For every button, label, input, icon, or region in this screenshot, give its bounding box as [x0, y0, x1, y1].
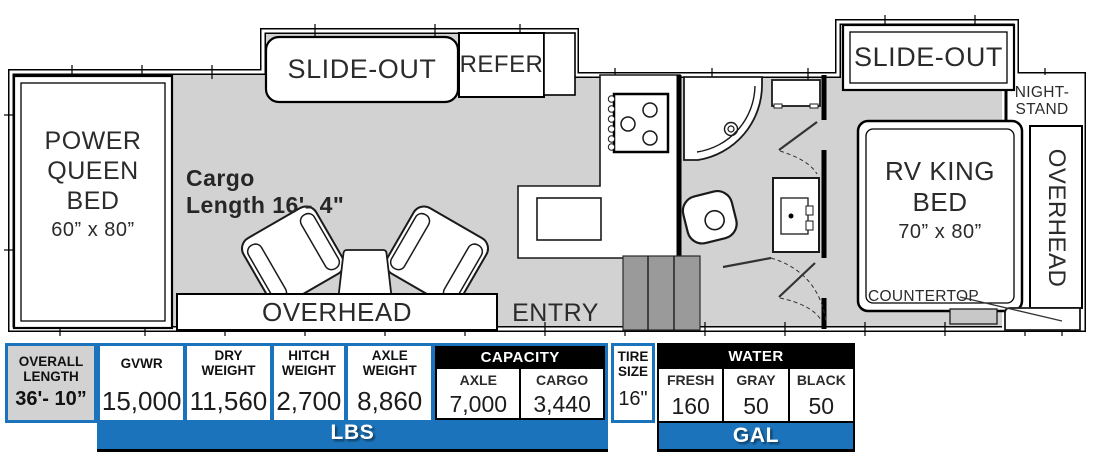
queen-bed-label: POWER QUEEN BED 60” x 80” [20, 126, 166, 242]
refer-label: REFER [459, 33, 544, 97]
overall-length-label: OVERALL LENGTH [19, 355, 84, 384]
capacity-axle-cell: AXLE 7,000 [437, 369, 519, 418]
tire-size-cell: TIRE SIZE 16" [611, 343, 655, 423]
rv-floorplan-graphic: POWER QUEEN BED 60” x 80” Cargo Length 1… [0, 0, 1093, 457]
kitchen-sink [537, 198, 601, 240]
king-bed-size: 70” x 80” [862, 220, 1018, 244]
hitch-weight-cell: HITCH WEIGHT 2,700 [274, 346, 344, 420]
lbs-unit-bar: LBS [100, 420, 605, 446]
gvwr-value: 15,000 [100, 382, 183, 420]
gal-unit-bar: GAL [659, 423, 853, 449]
capacity-cargo-value: 3,440 [521, 391, 603, 418]
linen-closet [772, 80, 820, 108]
hitch-weight-value: 2,700 [274, 382, 344, 420]
queen-bed-size: 60” x 80” [20, 218, 166, 242]
stove [608, 94, 668, 152]
weights-block: GVWR 15,000 DRY WEIGHT 11,560 HITCH WEIG… [97, 343, 608, 452]
cargo-length-label: Cargo Length 16'- 4" [186, 165, 344, 219]
black-water-cell: BLACK 50 [790, 369, 853, 421]
slide-out-right-label: SLIDE-OUT [843, 25, 1014, 90]
overhead-bedroom-label: OVERHEAD [1043, 130, 1069, 306]
entry-label: ENTRY [498, 296, 613, 330]
fresh-water-cell: FRESH 160 [659, 369, 722, 421]
vanity-sink [773, 178, 819, 252]
tire-size-value: 16" [618, 379, 647, 420]
slide-out-left-label: SLIDE-OUT [266, 37, 458, 102]
king-bed-label: RV KING BED 70” x 80” [862, 156, 1018, 244]
black-water-value: 50 [790, 391, 853, 421]
countertop-label: COUNTERTOP [868, 288, 979, 306]
nightstand-label: NIGHT- STAND [1004, 84, 1080, 119]
dry-weight-value: 11,560 [187, 382, 269, 420]
capacity-group: CAPACITY AXLE 7,000 CARGO 3,440 [435, 346, 605, 420]
fresh-water-value: 160 [659, 391, 722, 421]
water-group: WATER FRESH 160 GRAY 50 BLACK 50 GAL [657, 343, 855, 452]
overall-length-value: 36'- 10” [15, 388, 86, 411]
axle-weight-value: 8,860 [348, 382, 431, 420]
overall-length-cell: OVERALL LENGTH 36'- 10” [5, 343, 97, 423]
gray-water-value: 50 [724, 391, 787, 421]
side-table [339, 250, 391, 296]
capacity-axle-value: 7,000 [437, 391, 519, 418]
capacity-cargo-cell: CARGO 3,440 [521, 369, 603, 418]
axle-weight-cell: AXLE WEIGHT 8,860 [348, 346, 431, 420]
gray-water-cell: GRAY 50 [724, 369, 787, 421]
capacity-header: CAPACITY [437, 348, 603, 367]
gvwr-cell: GVWR 15,000 [100, 346, 183, 420]
entry-steps [623, 256, 700, 330]
dry-weight-cell: DRY WEIGHT 11,560 [187, 346, 269, 420]
overhead-garage-label: OVERHEAD [177, 294, 497, 330]
cabinet-box [544, 33, 575, 95]
water-header: WATER [659, 345, 853, 367]
